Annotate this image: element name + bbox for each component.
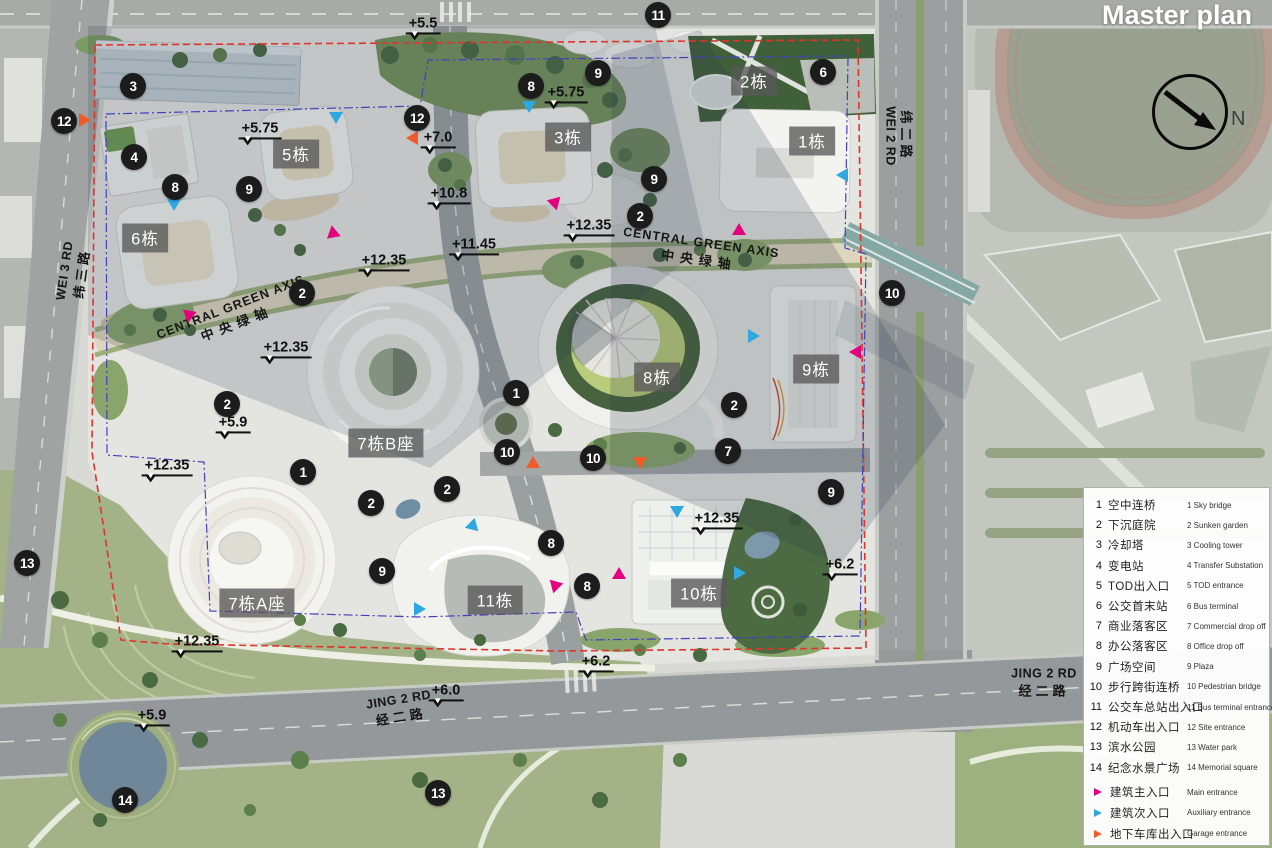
plan-marker: 13 <box>14 550 40 576</box>
legend-item-zh: 办公落客区 <box>1108 638 1168 654</box>
plan-marker: 9 <box>641 166 667 192</box>
legend-item-en: Auxiliary entrance <box>1187 808 1251 817</box>
legend-item-number: 1 <box>1084 499 1102 511</box>
legend-item: 10步行跨街连桥10 Pedestrian bridge <box>1084 678 1269 696</box>
main-entrance-marker <box>849 345 861 359</box>
north-compass: N <box>1152 74 1230 152</box>
plan-marker: 9 <box>236 176 262 202</box>
main-entrance-marker <box>612 567 626 579</box>
legend-item-en: 6 Bus terminal <box>1187 602 1238 611</box>
elevation-label: +5.9 <box>135 708 170 726</box>
elevation-label: +12.35 <box>172 634 223 652</box>
legend-item-zh: 建筑主入口 <box>1110 784 1170 800</box>
elevation-label: +6.0 <box>429 683 464 701</box>
plan-marker: 8 <box>518 73 544 99</box>
auxiliary-entrance-marker <box>748 329 760 343</box>
legend-item-number: 10 <box>1084 681 1102 693</box>
plan-marker: 12 <box>51 108 77 134</box>
north-arrow-icon <box>1152 74 1230 152</box>
legend-item: 5TOD出入口5 TOD entrance <box>1084 577 1269 595</box>
road-label: WEI 3 RD纬三路 <box>54 240 95 304</box>
garage-entrance-legend-icon <box>1094 830 1102 838</box>
elevation-label: +10.8 <box>428 186 471 204</box>
legend-item: 9广场空间9 Plaza <box>1084 658 1269 676</box>
elevation-label: +12.35 <box>142 458 193 476</box>
main-entrance-marker <box>545 575 563 593</box>
legend-item-zh: 商业落客区 <box>1108 618 1168 634</box>
plan-marker: 2 <box>434 476 460 502</box>
legend-item-en: 14 Memorial square <box>1187 763 1258 772</box>
elevation-label: +12.35 <box>564 218 615 236</box>
legend-item-en: Garage entrance <box>1187 829 1247 838</box>
elevation-label: +12.35 <box>359 253 410 271</box>
legend-item: 1空中连桥1 Sky bridge <box>1084 496 1269 514</box>
legend-item: 7商业落客区7 Commercial drop off <box>1084 617 1269 635</box>
legend-item-en: 5 TOD entrance <box>1187 581 1244 590</box>
legend-item-en: 13 Water park <box>1187 743 1237 752</box>
auxiliary-entrance-marker <box>465 518 483 536</box>
plan-marker: 8 <box>538 530 564 556</box>
page-title: Master plan <box>1102 0 1252 31</box>
legend-item: 12机动车出入口12 Site entrance <box>1084 718 1269 736</box>
garage-entrance-marker <box>406 131 418 145</box>
legend-item: 6公交首末站6 Bus terminal <box>1084 597 1269 615</box>
legend-item-number: 13 <box>1084 741 1102 753</box>
legend-item: 3冷却塔3 Cooling tower <box>1084 536 1269 554</box>
legend-item: 13滨水公园13 Water park <box>1084 738 1269 756</box>
legend-item-en: 9 Plaza <box>1187 662 1214 671</box>
elevation-label: +6.2 <box>579 654 614 672</box>
plan-marker: 14 <box>112 787 138 813</box>
legend-item-en: 2 Sunken garden <box>1187 521 1248 530</box>
auxiliary-entrance-marker <box>522 101 536 113</box>
road-label-text: 经二路 <box>1011 681 1077 700</box>
road-label-text: JING 2 RD <box>1011 667 1077 681</box>
legend-item-number: 4 <box>1084 560 1102 572</box>
legend-item-zh: 纪念水景广场 <box>1108 760 1180 776</box>
plan-marker: 8 <box>574 573 600 599</box>
legend-entrance-item: 建筑主入口Main entrance <box>1084 783 1269 801</box>
plan-marker: 6 <box>810 59 836 85</box>
garage-entrance-marker <box>633 457 647 469</box>
building-label: 8栋 <box>634 363 680 392</box>
plan-marker: 9 <box>369 558 395 584</box>
building-label: 11栋 <box>468 586 523 615</box>
road-label-text: WEI 2 RD <box>884 106 898 166</box>
plan-marker: 2 <box>358 490 384 516</box>
road-label: JING 2 RD经二路 <box>365 688 435 731</box>
legend-item-en: 12 Site entrance <box>1187 723 1245 732</box>
legend-item-zh: 公交首末站 <box>1108 598 1168 614</box>
legend-item: 4变电站4 Transfer Substation <box>1084 557 1269 575</box>
plan-marker: 4 <box>121 144 147 170</box>
plan-marker: 10 <box>494 439 520 465</box>
legend-item-number: 2 <box>1084 519 1102 531</box>
legend-item-zh: 广场空间 <box>1108 659 1156 675</box>
plan-marker: 2 <box>721 392 747 418</box>
legend-item: 2下沉庭院2 Sunken garden <box>1084 516 1269 534</box>
plan-marker: 2 <box>627 203 653 229</box>
plan-marker: 7 <box>715 438 741 464</box>
plan-marker: 1 <box>503 380 529 406</box>
garage-entrance-marker <box>79 113 91 127</box>
legend-item-en: 7 Commercial drop off <box>1187 622 1266 631</box>
auxiliary-entrance-marker <box>836 168 848 182</box>
road-label: JING 2 RD经二路 <box>1011 667 1077 700</box>
legend-item-number: 7 <box>1084 620 1102 632</box>
legend-item-zh: 冷却塔 <box>1108 537 1144 553</box>
elevation-label: +5.5 <box>406 16 441 34</box>
building-label: 5栋 <box>273 140 319 169</box>
auxiliary-entrance-legend-icon <box>1094 809 1102 817</box>
building-label: 7栋A座 <box>219 589 294 618</box>
legend-item-number: 8 <box>1084 640 1102 652</box>
central-green-axis-label: CENTRAL GREEN AXIS中央绿轴 <box>620 225 781 280</box>
legend-item-en: 4 Transfer Substation <box>1187 561 1263 570</box>
garage-entrance-marker <box>526 456 540 468</box>
legend-item-en: 10 Pedestrian bridge <box>1187 682 1261 691</box>
plan-marker: 9 <box>585 60 611 86</box>
building-label: 10栋 <box>671 579 727 608</box>
plan-marker: 8 <box>162 174 188 200</box>
plan-marker: 10 <box>580 445 606 471</box>
legend-item: 11公交车总站出入口11 Bus terminal entrance <box>1084 698 1269 716</box>
legend-item-en: 11 Bus terminal entrance <box>1187 703 1272 712</box>
main-entrance-legend-icon <box>1094 788 1102 796</box>
main-entrance-marker <box>732 223 746 235</box>
legend-entrance-item: 地下车库出入口Garage entrance <box>1084 825 1269 843</box>
legend-item-en: Main entrance <box>1187 788 1238 797</box>
building-label: 6栋 <box>122 224 168 253</box>
plan-marker: 9 <box>818 479 844 505</box>
legend-item-zh: 步行跨街连桥 <box>1108 679 1180 695</box>
building-label: 7栋B座 <box>348 429 423 458</box>
legend-item-en: 3 Cooling tower <box>1187 541 1243 550</box>
legend-item-zh: TOD出入口 <box>1108 578 1170 594</box>
auxiliary-entrance-marker <box>167 199 181 211</box>
elevation-label: +6.2 <box>823 557 858 575</box>
legend-item-number: 6 <box>1084 600 1102 612</box>
legend-item-zh: 机动车出入口 <box>1108 719 1180 735</box>
elevation-label: +7.0 <box>421 130 456 148</box>
legend-item-zh: 建筑次入口 <box>1110 805 1170 821</box>
building-label: 1栋 <box>789 127 835 156</box>
legend-item-en: 1 Sky bridge <box>1187 501 1231 510</box>
building-label: 2栋 <box>731 67 777 96</box>
master-plan-slide: CENTRAL GREEN AXIS中央绿轴CENTRAL GREEN AXIS… <box>0 0 1272 848</box>
annotation-overlay: CENTRAL GREEN AXIS中央绿轴CENTRAL GREEN AXIS… <box>0 0 1272 848</box>
legend-item-number: 12 <box>1084 721 1102 733</box>
main-entrance-marker <box>327 225 343 242</box>
road-label-text: 纬二路 <box>898 106 917 166</box>
elevation-label: +5.9 <box>216 415 251 433</box>
building-label: 3栋 <box>545 123 591 152</box>
plan-marker: 11 <box>645 2 671 28</box>
legend-item-number: 9 <box>1084 661 1102 673</box>
plan-marker: 13 <box>425 780 451 806</box>
elevation-label: +12.35 <box>261 340 312 358</box>
legend-item-zh: 变电站 <box>1108 558 1144 574</box>
plan-marker: 2 <box>214 391 240 417</box>
legend-item-number: 14 <box>1084 762 1102 774</box>
legend-item-number: 3 <box>1084 539 1102 551</box>
legend-item: 14纪念水景广场14 Memorial square <box>1084 759 1269 777</box>
legend-item-number: 5 <box>1084 580 1102 592</box>
legend-item-zh: 地下车库出入口 <box>1110 826 1194 842</box>
elevation-label: +12.35 <box>692 511 743 529</box>
legend-item-number: 11 <box>1084 701 1102 713</box>
legend-item: 8办公落客区8 Office drop off <box>1084 637 1269 655</box>
auxiliary-entrance-marker <box>329 112 343 124</box>
auxiliary-entrance-marker <box>734 566 746 580</box>
legend-item-zh: 滨水公园 <box>1108 739 1156 755</box>
legend-item-en: 8 Office drop off <box>1187 642 1244 651</box>
legend-item-zh: 下沉庭院 <box>1108 517 1156 533</box>
auxiliary-entrance-marker <box>414 602 426 616</box>
north-label: N <box>1231 108 1245 131</box>
legend-entrance-item: 建筑次入口Auxiliary entrance <box>1084 804 1269 822</box>
plan-marker: 12 <box>404 105 430 131</box>
legend-item-zh: 空中连桥 <box>1108 497 1156 513</box>
main-entrance-marker <box>547 192 565 210</box>
auxiliary-entrance-marker <box>670 506 684 518</box>
elevation-label: +11.45 <box>449 237 499 255</box>
plan-marker: 2 <box>289 280 315 306</box>
plan-marker: 10 <box>879 280 905 306</box>
building-label: 9栋 <box>793 355 839 384</box>
elevation-label: +5.75 <box>545 85 588 103</box>
plan-marker: 3 <box>120 73 146 99</box>
elevation-label: +5.75 <box>239 121 282 139</box>
road-label: 纬二路WEI 2 RD <box>884 106 917 166</box>
legend-panel: 1空中连桥1 Sky bridge2下沉庭院2 Sunken garden3冷却… <box>1083 487 1270 846</box>
plan-marker: 1 <box>290 459 316 485</box>
